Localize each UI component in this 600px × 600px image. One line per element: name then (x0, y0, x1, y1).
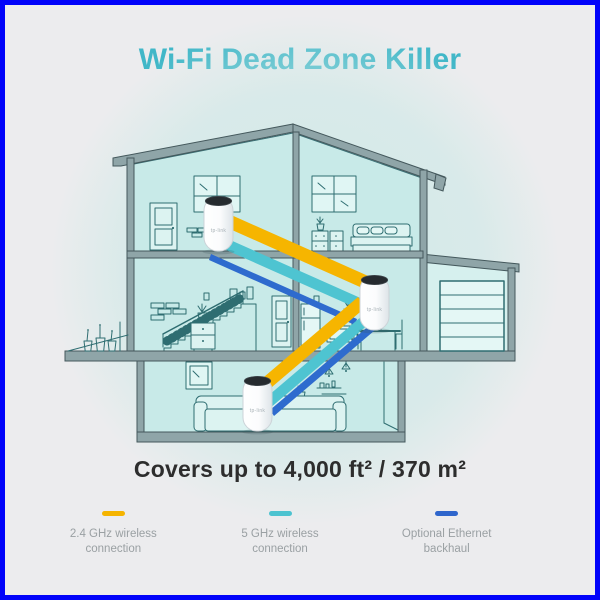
deco-unit-middle-floor: tp-link (359, 275, 391, 333)
deco-logo: tp-link (250, 408, 266, 414)
legend-label-5ghz: 5 GHz wireless connection (241, 527, 318, 558)
deco-unit-ground-floor: tp-link (242, 376, 274, 434)
legend-swatch-ethernet (435, 511, 458, 516)
house-cutaway-illustration: tp-link tp-link tp-link (0, 0, 600, 600)
deco-unit-top-floor: tp-link (203, 196, 235, 254)
coverage-text: Covers up to 4,000 ft² / 370 m² (5, 456, 595, 483)
door (150, 203, 177, 250)
legend: 2.4 GHz wireless connection 5 GHz wirele… (30, 511, 530, 558)
garage-door (440, 281, 504, 351)
legend-label-line1: 5 GHz wireless (241, 527, 318, 543)
legend-swatch-5ghz (269, 511, 292, 516)
legend-label-2-4ghz: 2.4 GHz wireless connection (70, 527, 157, 558)
center-wall (293, 132, 299, 352)
upper-floor (127, 251, 423, 258)
legend-label-line1: Optional Ethernet (402, 527, 492, 543)
ground-slab (137, 432, 405, 442)
deco-logo: tp-link (211, 228, 227, 234)
legend-item-5ghz: 5 GHz wireless connection (197, 511, 364, 558)
legend-label-line1: 2.4 GHz wireless (70, 527, 157, 543)
nightstand (191, 323, 215, 352)
deco-logo: tp-link (367, 307, 383, 313)
legend-swatch-2-4ghz (102, 511, 125, 516)
garage-right-wall (508, 268, 515, 351)
page: Wi-Fi Dead Zone Killer (0, 0, 600, 600)
right-wall (420, 170, 427, 352)
ground-left-wall (137, 361, 144, 432)
legend-label-line2: connection (241, 542, 318, 558)
legend-label-ethernet: Optional Ethernet backhaul (402, 527, 492, 558)
legend-label-line2: backhaul (402, 542, 492, 558)
legend-label-line2: connection (70, 542, 157, 558)
ground-right-wall (398, 361, 405, 432)
bed (351, 224, 412, 251)
legend-item-2-4ghz: 2.4 GHz wireless connection (30, 511, 197, 558)
legend-item-ethernet: Optional Ethernet backhaul (363, 511, 530, 558)
